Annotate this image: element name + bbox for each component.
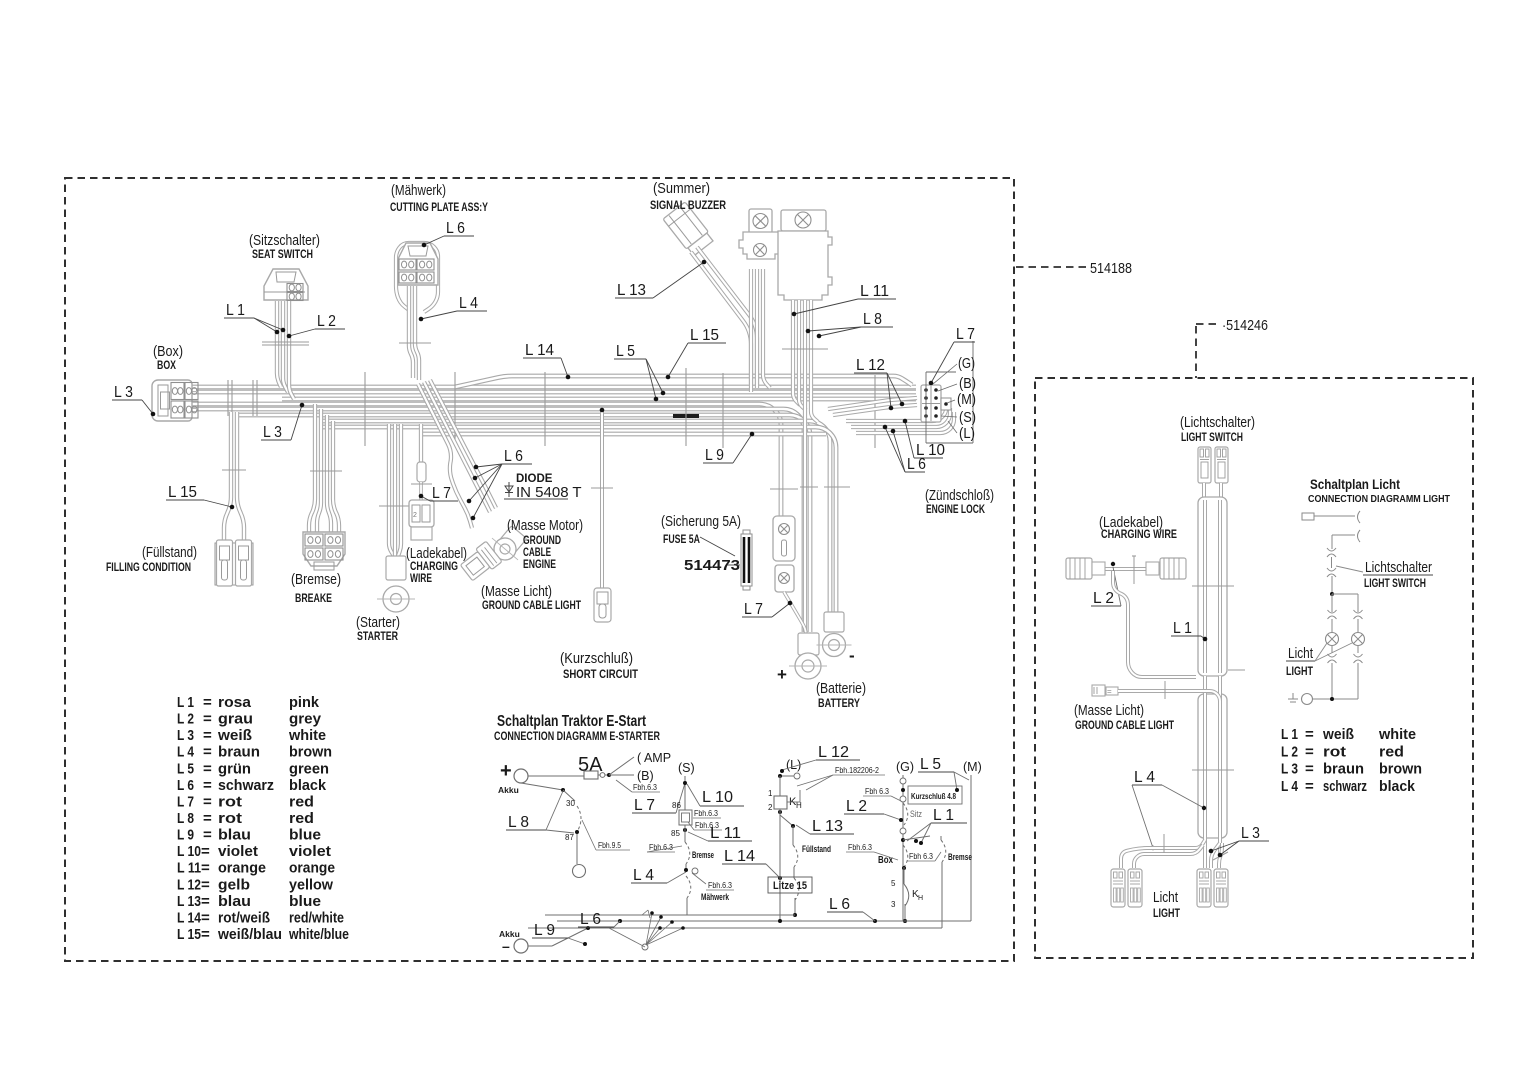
svg-text:green: green	[289, 760, 329, 777]
svg-text:Kurzschluß 4.8: Kurzschluß 4.8	[911, 791, 956, 801]
svg-text:1: 1	[768, 789, 773, 798]
svg-text:Schaltplan Traktor E-Start: Schaltplan Traktor E-Start	[497, 713, 646, 730]
svg-text:L 12: L 12	[177, 876, 201, 893]
svg-text:-: -	[849, 646, 855, 665]
svg-text:Litze 15: Litze 15	[773, 880, 807, 892]
svg-text:L 7: L 7	[634, 797, 655, 814]
svg-text:STARTER: STARTER	[357, 631, 399, 643]
svg-text:Bremse: Bremse	[692, 850, 714, 860]
svg-text:3: 3	[891, 900, 896, 909]
svg-text:orange: orange	[218, 860, 266, 877]
svg-text:white: white	[1378, 726, 1416, 743]
svg-text:+: +	[777, 665, 787, 684]
svg-text:BOX: BOX	[157, 360, 176, 372]
svg-text:L 3: L 3	[114, 384, 133, 401]
svg-text:(Kurzschluß): (Kurzschluß)	[560, 650, 633, 667]
svg-text:(Bremse): (Bremse)	[291, 571, 341, 588]
svg-text:L 2: L 2	[1093, 590, 1114, 607]
svg-text:Bremse: Bremse	[948, 852, 972, 862]
svg-text:rosa: rosa	[218, 694, 252, 711]
svg-text:L 6: L 6	[504, 448, 523, 465]
svg-text:L 14: L 14	[724, 848, 755, 865]
svg-text:BATTERY: BATTERY	[818, 698, 860, 710]
svg-text:grey: grey	[289, 711, 322, 728]
svg-text:L 6: L 6	[907, 456, 926, 473]
svg-text:CUTTING PLATE ASS:Y: CUTTING PLATE ASS:Y	[390, 202, 488, 214]
svg-text:rot: rot	[218, 793, 242, 810]
svg-text:white/blue: white/blue	[288, 926, 349, 943]
svg-text:blue: blue	[289, 893, 321, 910]
svg-text:514188: 514188	[1090, 260, 1132, 277]
svg-text:L 3: L 3	[263, 424, 282, 441]
svg-text:red: red	[1379, 743, 1404, 760]
svg-text:L 7: L 7	[432, 485, 451, 502]
svg-text:L 12: L 12	[856, 357, 885, 374]
svg-text:L 1: L 1	[1281, 726, 1298, 743]
svg-text:Fbh.182206-2: Fbh.182206-2	[835, 766, 879, 775]
svg-text:red: red	[289, 810, 314, 827]
svg-text:orange: orange	[289, 860, 335, 877]
svg-text:=: =	[201, 843, 210, 860]
svg-text:(Lichtschalter): (Lichtschalter)	[1180, 414, 1255, 431]
svg-text:blau: blau	[218, 827, 251, 844]
svg-text:=: =	[203, 711, 212, 728]
svg-text:=: =	[203, 777, 212, 794]
svg-text:(Sicherung 5A): (Sicherung 5A)	[661, 513, 741, 530]
svg-text:IN 5408 T: IN 5408 T	[516, 484, 582, 501]
svg-text:L 7: L 7	[177, 793, 194, 810]
svg-text:blau: blau	[218, 893, 251, 910]
svg-text:=: =	[201, 893, 210, 910]
svg-text:LIGHT SWITCH: LIGHT SWITCH	[1181, 432, 1243, 444]
svg-text:rot: rot	[218, 810, 242, 827]
svg-text:L 9: L 9	[705, 447, 724, 464]
svg-text:L 1: L 1	[933, 807, 954, 824]
svg-text:=: =	[203, 827, 212, 844]
svg-text:brown: brown	[1379, 761, 1422, 778]
svg-text:=: =	[203, 694, 212, 711]
svg-text:Fbh.6.3: Fbh.6.3	[633, 783, 657, 792]
svg-text:L 6: L 6	[446, 220, 465, 237]
svg-text:yellow: yellow	[289, 876, 333, 893]
svg-text:85: 85	[671, 829, 680, 838]
svg-text:L 5: L 5	[616, 343, 635, 360]
svg-text:GROUND: GROUND	[523, 535, 561, 547]
svg-text:L 4: L 4	[633, 867, 654, 884]
svg-text:Fbh.6.3: Fbh.6.3	[848, 843, 872, 852]
svg-text:(Sitzschalter): (Sitzschalter)	[249, 232, 320, 249]
svg-text:=: =	[201, 860, 210, 877]
svg-text:Fbh 6.3: Fbh 6.3	[865, 787, 889, 796]
svg-text:ENGINE: ENGINE	[523, 559, 556, 571]
svg-text:=: =	[1305, 743, 1314, 760]
svg-text:=: =	[203, 744, 212, 761]
svg-text:L 4: L 4	[459, 295, 478, 312]
svg-text:L 5: L 5	[177, 760, 194, 777]
svg-text:L 1: L 1	[177, 694, 194, 711]
svg-text:CONNECTION DIAGRAMM LIGHT: CONNECTION DIAGRAMM LIGHT	[1308, 493, 1450, 505]
svg-text:=: =	[203, 727, 212, 744]
svg-text:=: =	[203, 760, 212, 777]
svg-text:30: 30	[566, 799, 575, 808]
svg-text:–: –	[502, 938, 510, 954]
svg-text:=: =	[1305, 761, 1314, 778]
svg-text:Akku: Akku	[498, 785, 519, 795]
svg-text:L 9: L 9	[177, 827, 194, 844]
svg-text:L 7: L 7	[956, 326, 975, 343]
svg-text:=: =	[1305, 778, 1314, 795]
svg-text:SHORT CIRCUIT: SHORT CIRCUIT	[563, 669, 638, 681]
svg-text:L 2: L 2	[846, 798, 867, 815]
svg-text:braun: braun	[1323, 761, 1364, 778]
svg-text:Licht: Licht	[1153, 889, 1179, 906]
svg-text:braun: braun	[218, 744, 260, 761]
svg-text:2: 2	[768, 803, 773, 812]
svg-text:L 11: L 11	[177, 860, 201, 877]
svg-text:weiß/blau: weiß/blau	[217, 926, 282, 943]
svg-text:(Starter): (Starter)	[356, 614, 400, 631]
svg-text:+: +	[500, 760, 512, 782]
svg-text:5: 5	[891, 879, 896, 888]
svg-text:L 1: L 1	[226, 302, 245, 319]
svg-text:2: 2	[413, 512, 417, 519]
svg-text:WIRE: WIRE	[410, 573, 432, 585]
svg-text:FUSE 5A: FUSE 5A	[663, 534, 700, 546]
svg-text:=: =	[201, 909, 210, 926]
svg-text:(G): (G)	[958, 356, 975, 372]
svg-text:=: =	[201, 926, 210, 943]
svg-text:(Summer): (Summer)	[653, 180, 710, 197]
svg-text:=: =	[1107, 687, 1112, 696]
svg-text:L 9: L 9	[534, 922, 555, 939]
svg-text:5A: 5A	[578, 754, 603, 776]
svg-text:(L): (L)	[959, 426, 975, 442]
svg-text:white: white	[288, 727, 326, 744]
svg-text:(Masse Licht): (Masse Licht)	[1074, 702, 1144, 719]
svg-text:L 14: L 14	[177, 909, 202, 926]
svg-text:red: red	[289, 793, 314, 810]
svg-text:grau: grau	[218, 711, 253, 728]
svg-text:L 10: L 10	[177, 843, 201, 860]
svg-text:L 2: L 2	[177, 711, 194, 728]
svg-text:L 8: L 8	[177, 810, 194, 827]
svg-text:(S): (S)	[678, 761, 695, 775]
svg-text:BREAKE: BREAKE	[295, 593, 332, 605]
svg-text:Fbh.9.5: Fbh.9.5	[598, 841, 621, 850]
svg-text:L 15: L 15	[690, 327, 719, 344]
svg-text:(Füllstand): (Füllstand)	[142, 544, 197, 561]
svg-text:L 2: L 2	[317, 313, 336, 330]
svg-text:L 4: L 4	[1281, 778, 1299, 795]
svg-text:L 13: L 13	[177, 893, 201, 910]
svg-text:L 11: L 11	[710, 825, 741, 842]
svg-text:CABLE: CABLE	[523, 547, 551, 559]
svg-text:=: =	[201, 876, 210, 893]
svg-text:Fbh.6.3: Fbh.6.3	[694, 809, 718, 818]
svg-text:(Ladekabel): (Ladekabel)	[406, 545, 467, 562]
svg-text:L 15: L 15	[168, 484, 197, 501]
svg-text:(S): (S)	[959, 410, 976, 426]
svg-text:(Masse Licht): (Masse Licht)	[481, 583, 552, 600]
svg-text:(Batterie): (Batterie)	[816, 680, 866, 697]
svg-text:brown: brown	[289, 744, 332, 761]
svg-text:L 14: L 14	[525, 342, 554, 359]
svg-text:=: =	[203, 810, 212, 827]
svg-text:violet: violet	[218, 843, 258, 860]
svg-text:86: 86	[672, 801, 681, 810]
svg-text:CHARGING WIRE: CHARGING WIRE	[1101, 529, 1177, 541]
svg-text:L 12: L 12	[818, 744, 849, 761]
svg-text:CHARGING: CHARGING	[410, 561, 458, 573]
svg-text:pink: pink	[289, 694, 320, 711]
svg-text:L 7: L 7	[744, 601, 763, 618]
svg-text:L 1: L 1	[1173, 620, 1192, 637]
svg-text:weiß: weiß	[1322, 726, 1354, 743]
svg-text:CONNECTION DIAGRAMM E-STARTER: CONNECTION DIAGRAMM E-STARTER	[494, 729, 660, 743]
svg-text:Sitz: Sitz	[910, 809, 922, 819]
svg-text:(M): (M)	[957, 392, 976, 408]
svg-text:=: =	[1305, 726, 1314, 743]
svg-text:red/white: red/white	[289, 909, 344, 926]
svg-text:L 10: L 10	[702, 789, 733, 806]
svg-text:black: black	[289, 777, 327, 794]
svg-text:Schaltplan Licht: Schaltplan Licht	[1310, 476, 1400, 492]
svg-text:Licht: Licht	[1288, 645, 1314, 662]
svg-text:Lichtschalter: Lichtschalter	[1365, 559, 1432, 576]
svg-text:L 2: L 2	[1281, 743, 1298, 760]
svg-text:FILLING CONDITION: FILLING CONDITION	[106, 562, 191, 574]
svg-text:schwarz: schwarz	[218, 777, 274, 794]
svg-text:H: H	[918, 895, 923, 902]
svg-text:(Masse Motor): (Masse Motor)	[507, 517, 583, 534]
svg-text:rot/weiß: rot/weiß	[218, 909, 270, 926]
svg-text:(Mähwerk): (Mähwerk)	[391, 182, 446, 199]
svg-text:(B): (B)	[959, 376, 976, 392]
svg-text:(B): (B)	[637, 769, 654, 783]
svg-text:GROUND CABLE LIGHT: GROUND CABLE LIGHT	[482, 600, 581, 612]
svg-text:Fbh 6.3: Fbh 6.3	[909, 852, 933, 861]
svg-text:Füllstand: Füllstand	[802, 844, 831, 854]
svg-text:514473: 514473	[684, 557, 740, 574]
svg-text:L 6: L 6	[580, 911, 601, 928]
svg-text:L 15: L 15	[177, 926, 201, 943]
svg-text:gelb: gelb	[218, 876, 250, 893]
svg-text:black: black	[1379, 778, 1416, 795]
svg-text:LIGHT: LIGHT	[1153, 908, 1180, 920]
svg-text:L 4: L 4	[1134, 769, 1155, 786]
svg-text:L 8: L 8	[863, 311, 882, 328]
svg-text:L 11: L 11	[860, 283, 889, 300]
svg-text:=: =	[203, 793, 212, 810]
svg-text:schwarz: schwarz	[1323, 778, 1367, 795]
svg-text:87: 87	[565, 833, 574, 842]
svg-text:(Zündschloß): (Zündschloß)	[925, 487, 994, 504]
svg-text:GROUND CABLE LIGHT: GROUND CABLE LIGHT	[1075, 720, 1174, 732]
svg-text:SIGNAL BUZZER: SIGNAL BUZZER	[650, 200, 727, 212]
svg-text:violet: violet	[289, 843, 331, 860]
svg-text:LIGHT: LIGHT	[1286, 666, 1313, 678]
svg-text:L 3: L 3	[177, 727, 194, 744]
svg-text:rot: rot	[1323, 743, 1346, 760]
svg-text:weiß: weiß	[217, 727, 252, 744]
svg-text:·514246: ·514246	[1222, 317, 1268, 334]
svg-text:L 8: L 8	[508, 814, 529, 831]
svg-text:Fbh.6.3: Fbh.6.3	[708, 881, 732, 890]
svg-text:L 3: L 3	[1281, 761, 1298, 778]
svg-text:grün: grün	[218, 760, 251, 777]
svg-text:(G): (G)	[896, 760, 914, 774]
svg-text:(Box): (Box)	[153, 343, 183, 360]
svg-text:Mähwerk: Mähwerk	[701, 892, 730, 902]
svg-text:(M): (M)	[963, 760, 982, 774]
svg-text:L 13: L 13	[617, 282, 646, 299]
svg-text:ENGINE LOCK: ENGINE LOCK	[926, 504, 986, 516]
svg-text:L 3: L 3	[1241, 825, 1260, 842]
svg-text:SEAT SWITCH: SEAT SWITCH	[252, 249, 313, 261]
svg-text:( AMP: ( AMP	[637, 751, 671, 765]
svg-text:L 5: L 5	[920, 756, 941, 773]
svg-text:L 13: L 13	[812, 818, 843, 835]
svg-text:L 6: L 6	[177, 777, 194, 794]
svg-text:L 6: L 6	[829, 896, 850, 913]
svg-text:LIGHT SWITCH: LIGHT SWITCH	[1364, 578, 1426, 590]
svg-text:blue: blue	[289, 827, 321, 844]
svg-text:L 4: L 4	[177, 744, 195, 761]
